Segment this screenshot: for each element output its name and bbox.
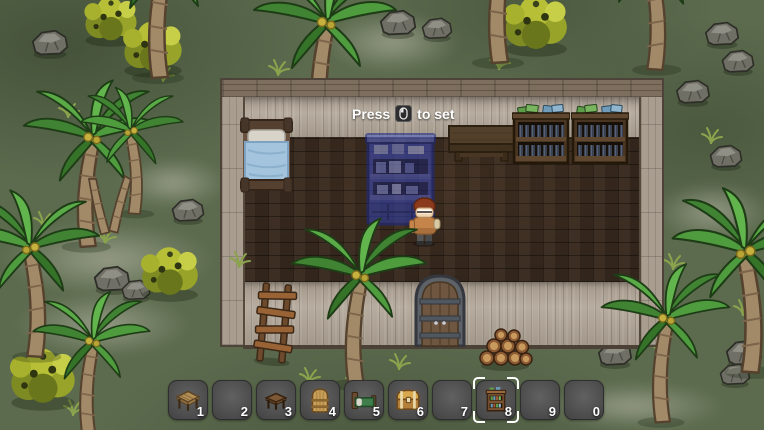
- hotbar: 1 2 3 4: [168, 380, 604, 420]
- grass-tuft: [698, 126, 724, 144]
- grass-tuft: [226, 250, 252, 268]
- hotbar-slot-2[interactable]: 2: [212, 380, 252, 420]
- slot-key: 8: [505, 404, 512, 419]
- hotbar-slot-8[interactable]: 8: [476, 380, 516, 420]
- hotbar-slot-7[interactable]: 7: [432, 380, 472, 420]
- game-viewport[interactable]: Press to set 1 2: [0, 0, 764, 430]
- log-pile: [477, 323, 533, 371]
- rock: [674, 78, 712, 107]
- rock: [720, 48, 756, 76]
- hotbar-slot-1[interactable]: 1: [168, 380, 208, 420]
- rock: [708, 143, 744, 171]
- bed: [240, 116, 293, 194]
- slot-key: 6: [417, 404, 424, 419]
- hotbar-slot-6[interactable]: 6: [388, 380, 428, 420]
- slot-key: 0: [593, 404, 600, 419]
- slot-key: 1: [197, 404, 204, 419]
- slot-key: 2: [241, 404, 248, 419]
- hotbar-slot-5[interactable]: 5: [344, 380, 384, 420]
- hint-suffix-label: to set: [417, 106, 454, 122]
- palm-tree: [288, 216, 430, 392]
- hotbar-slot-10[interactable]: 0: [564, 380, 604, 420]
- slot-key: 4: [329, 404, 336, 419]
- palm-tree: [30, 290, 153, 430]
- slot-key: 9: [549, 404, 556, 419]
- slot-key: 5: [373, 404, 380, 419]
- palm-tree: [581, 0, 723, 77]
- wooden-table: [447, 124, 516, 162]
- hotbar-slot-9[interactable]: 9: [520, 380, 560, 420]
- placement-hint: Press to set: [352, 105, 455, 122]
- hotbar-slot-3[interactable]: 3: [256, 380, 296, 420]
- hint-prefix-label: Press: [352, 106, 390, 122]
- hotbar-slot-4[interactable]: 4: [300, 380, 340, 420]
- mouse-left-button-icon: [395, 105, 412, 122]
- slot-key: 7: [461, 404, 468, 419]
- palm-tree: [88, 0, 238, 85]
- slot-key: 3: [285, 404, 292, 419]
- bookshelf: [512, 104, 570, 166]
- bookshelf: [571, 104, 629, 166]
- rock: [30, 28, 70, 59]
- palm-tree: [428, 0, 578, 70]
- palm-tree: [668, 186, 764, 380]
